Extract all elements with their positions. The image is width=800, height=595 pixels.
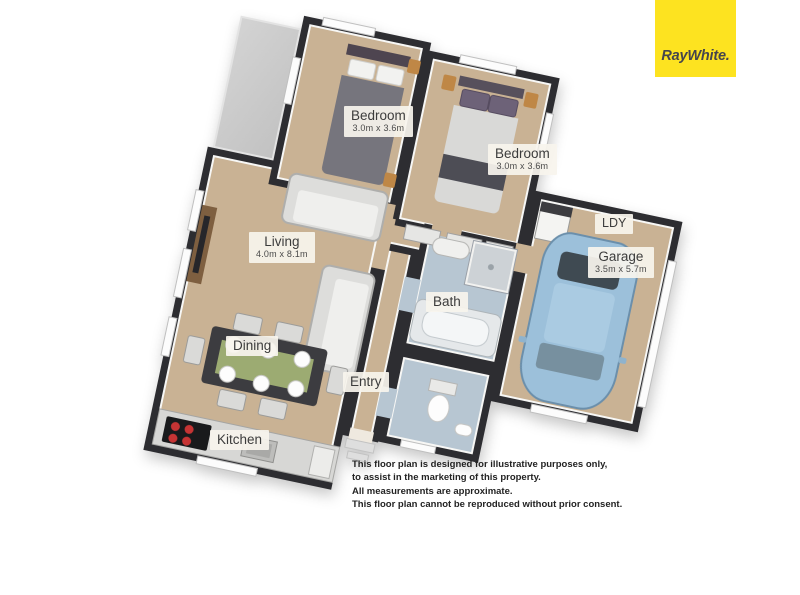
room-name: Dining [233, 338, 271, 353]
label-laundry: LDY [595, 214, 633, 234]
room-name: Bedroom [351, 108, 406, 123]
room-dims: 3.5m x 5.7m [595, 264, 647, 275]
room-name: LDY [602, 216, 626, 231]
room-dims: 3.0m x 3.6m [351, 123, 406, 134]
floorplan-page: { "brand": { "name": "RayWhite." }, "flo… [0, 0, 800, 533]
room-name: Bath [433, 294, 461, 309]
room-name: Garage [595, 249, 647, 264]
room-dims: 3.0m x 3.6m [495, 161, 550, 172]
room-labels: Bedroom 3.0m x 3.6m Bedroom 3.0m x 3.6m … [0, 0, 800, 533]
room-name: Living [256, 234, 308, 249]
label-entry: Entry [343, 372, 389, 392]
label-bedroom-2: Bedroom 3.0m x 3.6m [488, 144, 557, 175]
label-garage: Garage 3.5m x 5.7m [588, 247, 654, 278]
label-bedroom-1: Bedroom 3.0m x 3.6m [344, 106, 413, 137]
label-kitchen: Kitchen [210, 430, 269, 450]
label-living: Living 4.0m x 8.1m [249, 232, 315, 263]
room-name: Kitchen [217, 432, 262, 447]
room-name: Bedroom [495, 146, 550, 161]
room-dims: 4.0m x 8.1m [256, 249, 308, 260]
label-bath: Bath [426, 292, 468, 312]
label-dining: Dining [226, 336, 278, 356]
room-name: Entry [350, 374, 382, 389]
